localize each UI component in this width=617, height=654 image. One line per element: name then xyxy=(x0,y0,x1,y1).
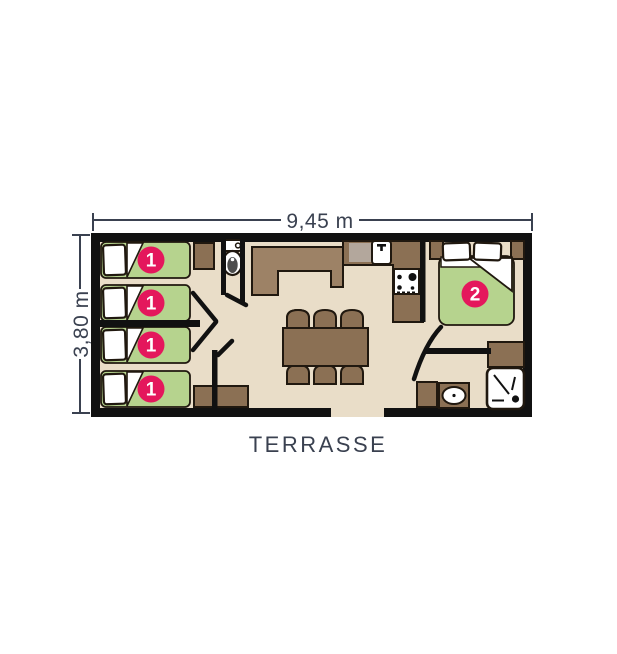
wardrobe-top-left xyxy=(194,243,214,269)
pillow xyxy=(103,245,126,276)
bed-marker-number: 1 xyxy=(146,251,157,272)
chair xyxy=(287,365,309,384)
stove-burners-icon xyxy=(394,269,419,294)
bathroom-cabinet-top xyxy=(488,342,524,367)
height-dimension: 3,80 m xyxy=(70,235,93,413)
flush-button xyxy=(236,243,241,248)
bed-marker-number: 1 xyxy=(146,380,157,401)
wardrobe-bottom-left xyxy=(194,386,248,407)
dining-table xyxy=(283,328,368,366)
terrace-opening xyxy=(331,407,384,417)
pillow xyxy=(474,243,502,261)
width-dimension: 9,45 m xyxy=(93,210,532,233)
chair xyxy=(314,365,336,384)
wall-corridor xyxy=(212,350,218,408)
chair xyxy=(341,365,363,384)
bathroom-sink-icon xyxy=(439,383,469,408)
shower-icon xyxy=(487,368,524,409)
bed-marker-number: 1 xyxy=(146,294,157,315)
stove-top xyxy=(394,269,419,294)
pillow xyxy=(103,288,126,319)
bed-marker-number: 1 xyxy=(146,336,157,357)
chair xyxy=(314,310,336,329)
wall-wc-right xyxy=(240,237,245,302)
chair xyxy=(287,310,309,329)
pillow xyxy=(103,374,126,405)
chair xyxy=(341,310,363,329)
wall-bathroom xyxy=(425,348,491,354)
height-dimension-label: 3,80 m xyxy=(70,290,93,357)
dining-set xyxy=(283,310,368,384)
wall-wc-left xyxy=(221,237,226,295)
width-dimension-label: 9,45 m xyxy=(286,210,353,233)
floorplan-canvas: 9,45 m 3,80 m 1 1 xyxy=(0,0,617,654)
floorplan-page: 9,45 m 3,80 m 1 1 xyxy=(0,0,617,654)
single-bed-3: 1 xyxy=(101,327,190,363)
drainer-board xyxy=(349,243,372,262)
headboard-right xyxy=(511,241,524,259)
kitchen-sink xyxy=(372,241,391,264)
bathroom-cabinet-left xyxy=(417,382,437,407)
wall-kitchen-bedroom xyxy=(420,237,426,322)
single-bed-1: 1 xyxy=(101,242,190,278)
pillow xyxy=(443,243,471,261)
bed-marker-number: 2 xyxy=(470,285,481,306)
wall-bedroom-divider xyxy=(91,320,200,327)
pillow xyxy=(103,330,126,361)
single-bed-4: 1 xyxy=(101,371,190,407)
terrace-label: TERRASSE xyxy=(249,432,388,457)
single-bed-2: 1 xyxy=(101,285,190,321)
